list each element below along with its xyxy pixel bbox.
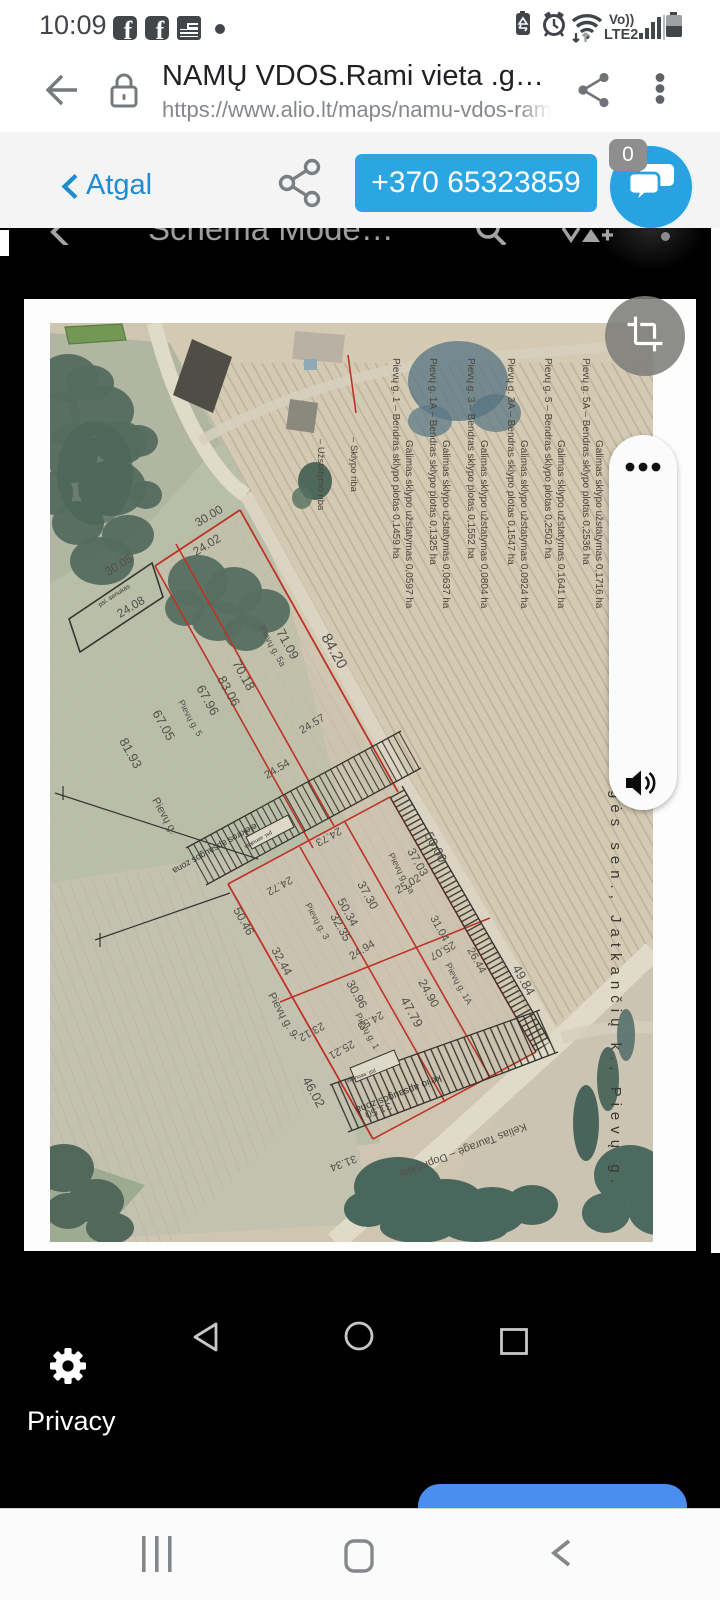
svg-text:LTE2: LTE2	[604, 27, 638, 43]
svg-text:Pievų g. 5A – Bendras sklypo: Pievų g. 5A – Bendras sklypo plotas 0,25…	[580, 358, 591, 565]
svg-text:f: f	[156, 16, 165, 43]
svg-text:Pievų g. 1A – Bendras sklypo: Pievų g. 1A – Bendras sklypo plotas 0,13…	[427, 358, 438, 565]
svg-text:Galimas sklypo užstatymas 0,16: Galimas sklypo užstatymas 0,1641 ha	[555, 440, 566, 609]
svg-text:Pievų g. 3 – Bendras sklypo: Pievų g. 3 – Bendras sklypo plotas 0,155…	[465, 358, 476, 559]
svg-text:Pievų g. 3A – Bendras sklypo: Pievų g. 3A – Bendras sklypo plotas 0,15…	[505, 358, 516, 565]
svg-text:gės sen., Jatkančių k., Pi: gės sen., Jatkančių k., Pievų g.	[607, 790, 624, 1189]
svg-text:– Užstatymo riba: – Užstatymo riba	[315, 439, 326, 511]
svg-text:Galimas sklypo užstatymas 0,17: Galimas sklypo užstatymas 0,1716 ha	[593, 440, 604, 609]
svg-text:Vo)): Vo))	[609, 12, 634, 27]
svg-text:Galimas sklypo užstatymas 0,08: Galimas sklypo užstatymas 0,0804 ha	[478, 440, 489, 609]
svg-text:Galimas sklypo užstatymas 0,05: Galimas sklypo užstatymas 0,0597 ha	[403, 440, 414, 609]
svg-text:f: f	[124, 16, 133, 43]
svg-text:Galimas sklypo užstatymas 0,06: Galimas sklypo užstatymas 0,0637 ha	[440, 440, 451, 609]
svg-text:Galimas sklypo užstatymas 0,09: Galimas sklypo užstatymas 0,0924 ha	[518, 440, 529, 609]
svg-text:– Sklypo riba: – Sklypo riba	[348, 437, 359, 493]
svg-text:Pievų g. 5 – Bendras sklypo: Pievų g. 5 – Bendras sklypo plotas 0,250…	[542, 358, 553, 559]
svg-text:Pievų g. 1 – Bendras sklypo: Pievų g. 1 – Bendras sklypo plotas 0,145…	[390, 358, 401, 559]
